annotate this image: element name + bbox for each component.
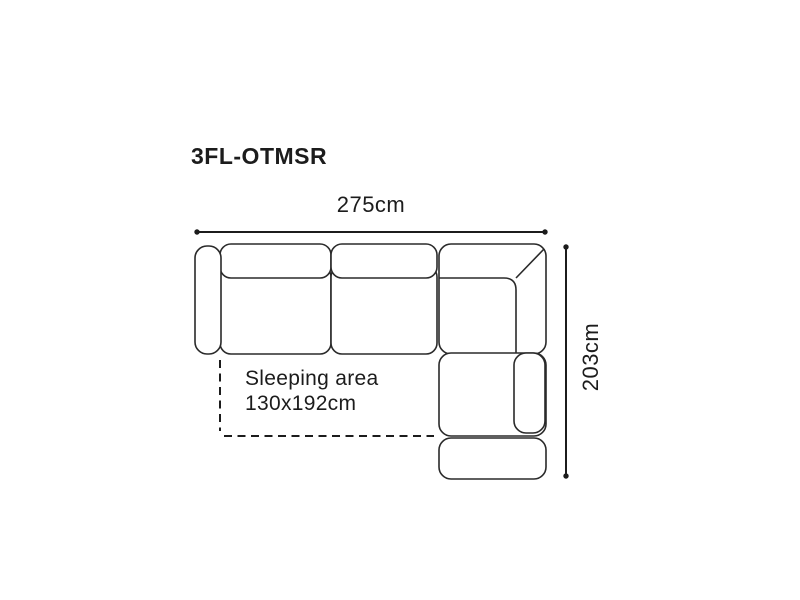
height-dimension: 203cm: [563, 244, 603, 478]
width-dimension-label: 275cm: [337, 192, 406, 217]
height-dimension-label: 203cm: [578, 323, 603, 392]
width-dimension-end-dot: [542, 229, 547, 234]
ottoman: [439, 438, 546, 479]
sleeping-area-label: Sleeping area: [245, 367, 379, 390]
corner-module: [439, 244, 546, 354]
backrest-cushion-1: [220, 244, 331, 278]
seat-cushion-2: [331, 266, 437, 354]
sofa-top-view-drawing: 275cm 203cm: [0, 0, 800, 600]
sleeping-area: Sleeping area 130x192cm: [220, 360, 434, 436]
sleeping-area-size: 130x192cm: [245, 392, 356, 415]
height-dimension-start-dot: [563, 244, 568, 249]
width-dimension: 275cm: [194, 192, 547, 235]
seat-cushion-1: [220, 266, 331, 354]
sofa-outline: [195, 244, 546, 479]
sofa-dimension-diagram: 3FL-OTMSR 275cm 203cm: [0, 0, 800, 600]
height-dimension-end-dot: [563, 473, 568, 478]
chaise-right-armrest: [514, 353, 545, 433]
backrest-cushion-2: [331, 244, 437, 278]
left-armrest: [195, 246, 221, 354]
width-dimension-start-dot: [194, 229, 199, 234]
